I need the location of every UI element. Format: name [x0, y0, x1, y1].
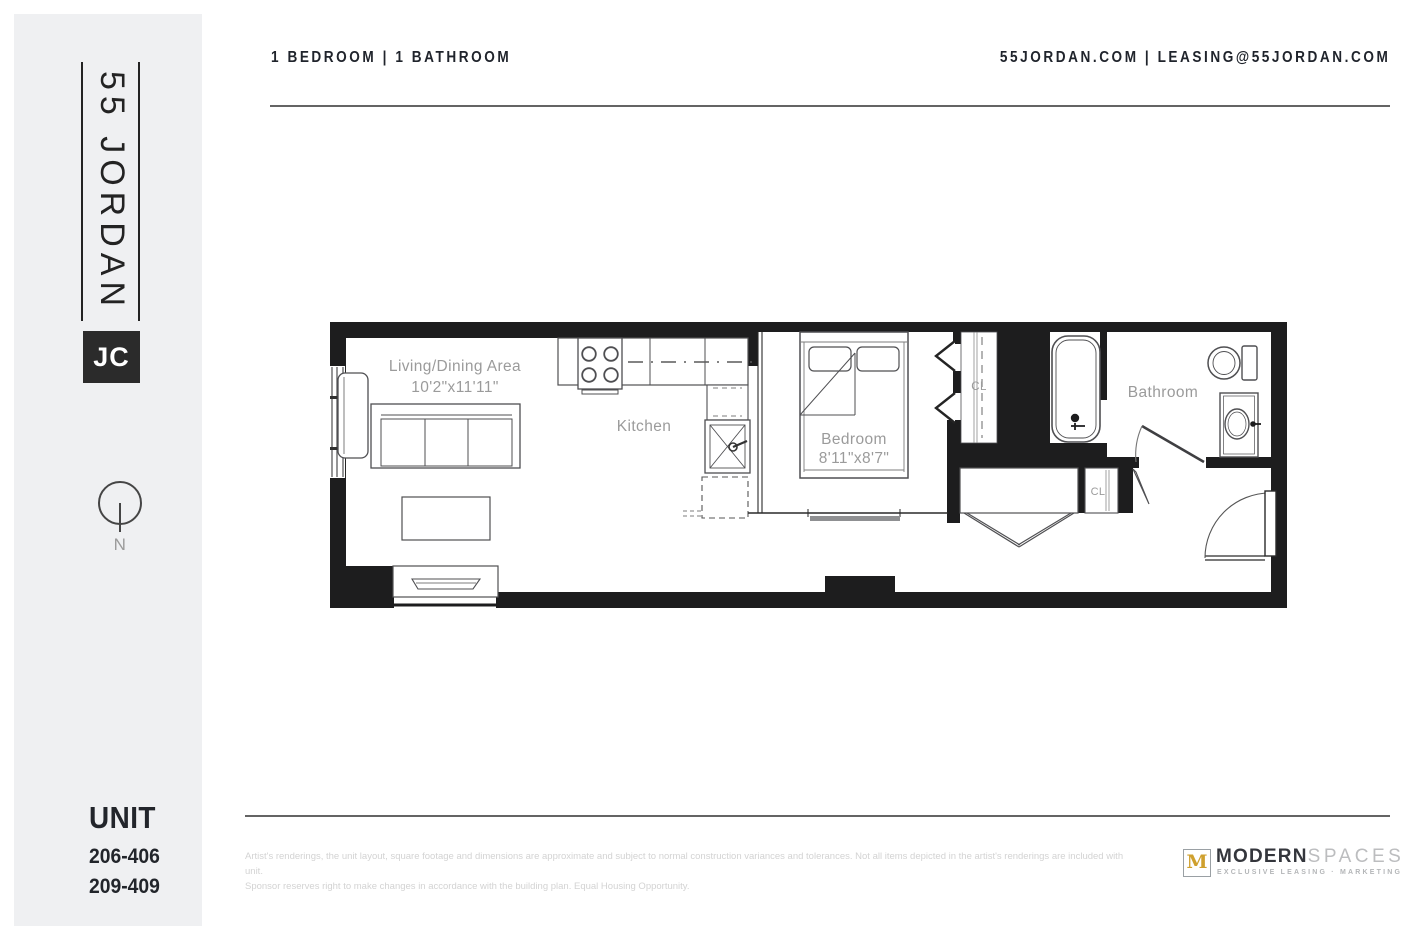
dishwasher: [702, 477, 748, 518]
stove: [578, 338, 622, 394]
disclaimer-line: Artist's renderings, the unit layout, sq…: [245, 849, 1125, 879]
media-console: [338, 373, 368, 458]
modern-spaces-tagline: EXCLUSIVE LEASING · MARKETING: [1217, 869, 1402, 876]
modern-spaces-logo: M: [1183, 849, 1211, 877]
sofa: [371, 404, 520, 468]
closet-label: CL: [971, 381, 987, 393]
tv-console: [393, 566, 498, 597]
compass-n-label: N: [114, 535, 127, 554]
floorplan-sheet: 55 JORDAN JC N UNIT 206-406 209-409 1 BE…: [0, 0, 1426, 926]
building-logo: 55 JORDAN: [83, 62, 140, 321]
bathtub: [1052, 336, 1100, 442]
compass-north-icon: N: [96, 480, 144, 556]
jc-badge: JC: [83, 331, 140, 383]
vanity-sink: [1220, 393, 1261, 457]
floorplan: Living/Dining Area 10'2"x11'11": [330, 320, 1287, 608]
disclaimer-line: Sponsor reserves right to make changes i…: [245, 879, 1125, 894]
brand-name-light: SPACES: [1308, 846, 1405, 867]
bedroom-dims: 8'11"x8'7": [819, 450, 890, 467]
modern-spaces-monogram: M: [1184, 850, 1210, 875]
bedroom-label: Bedroom: [821, 431, 887, 448]
coffee-table: [402, 497, 490, 540]
kitchen-sink: [705, 420, 750, 473]
header-divider: [270, 105, 1390, 107]
contact-info: 55JORDAN.COM | LEASING@55JORDAN.COM: [1000, 49, 1390, 67]
sliding-door: [810, 516, 900, 521]
bed-bath-count: 1 BEDROOM | 1 BATHROOM: [271, 49, 511, 67]
lower-cabinet: [707, 385, 748, 420]
unit-numbers: 206-406 209-409: [89, 842, 160, 902]
closet-label: CL: [1091, 486, 1106, 498]
kitchen-label: Kitchen: [617, 418, 672, 435]
bathroom-label: Bathroom: [1128, 384, 1198, 401]
sidebar: 55 JORDAN JC N UNIT 206-406 209-409: [14, 14, 202, 926]
living-room-dims: 10'2"x11'11": [411, 379, 499, 396]
unit-number-range: 206-406: [89, 842, 160, 872]
disclaimer: Artist's renderings, the unit layout, sq…: [245, 849, 1125, 894]
brand-name-bold: MODERN: [1216, 846, 1308, 867]
floorplan-svg: Living/Dining Area 10'2"x11'11": [330, 320, 1287, 608]
unit-number-range: 209-409: [89, 872, 160, 902]
living-room-label: Living/Dining Area: [389, 358, 521, 375]
modern-spaces-name: MODERNSPACES: [1216, 846, 1404, 868]
unit-heading: UNIT: [89, 800, 156, 836]
toilet: [1208, 346, 1257, 380]
footer-divider: [245, 815, 1390, 817]
